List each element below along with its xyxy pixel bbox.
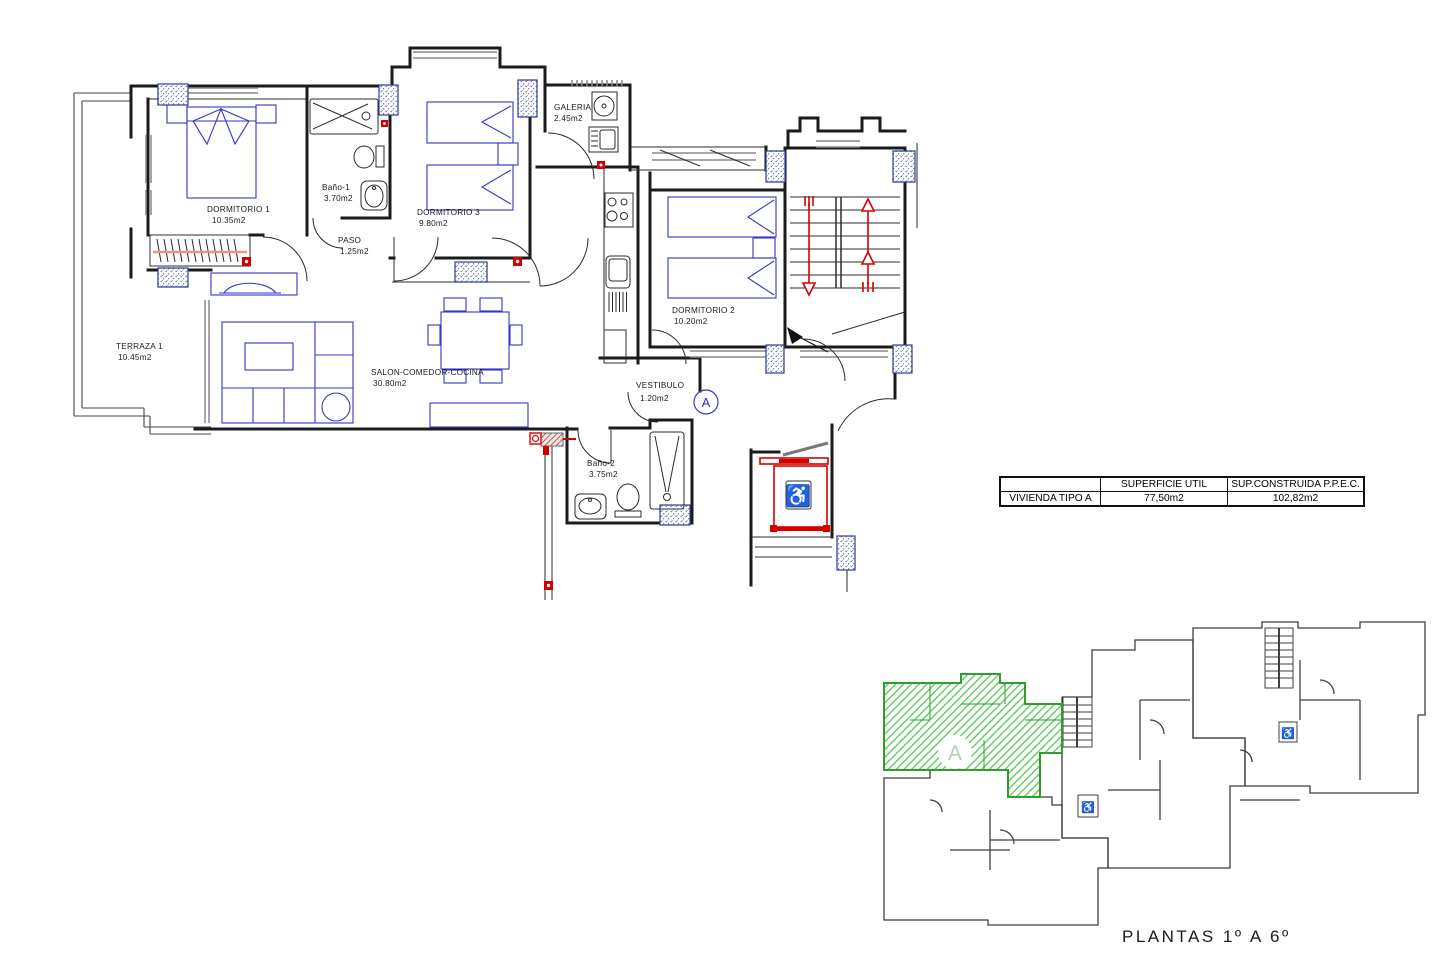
label-paso: PASO xyxy=(338,236,361,245)
area-terraza-1: 10.45m2 xyxy=(118,353,152,362)
duct-assembly xyxy=(530,433,576,455)
area-vestibulo: 1.20m2 xyxy=(640,394,669,403)
area-dormitorio-2: 10.20m2 xyxy=(674,317,708,326)
unit-marker-letter: A xyxy=(702,395,711,410)
label-bano-1: Baño-1 xyxy=(322,183,350,192)
cell-sup-construida: 102,82m2 xyxy=(1228,492,1365,507)
overview-elevators: ♿ ♿ xyxy=(1078,722,1297,817)
label-dormitorio-1: DORMITORIO 1 xyxy=(207,205,270,214)
floor-plan-sheet: ♿ A DORMITORIO 1 10.35m2 Baño-1 3.70m2 xyxy=(0,0,1433,974)
stair-arrows-icon xyxy=(803,196,874,295)
area-salon: 30.80m2 xyxy=(373,379,407,388)
unit-marker: A xyxy=(694,390,718,414)
overview-caption: PLANTAS 1º A 6º xyxy=(1122,927,1291,946)
thin-lines xyxy=(148,99,917,600)
area-bano-1: 3.70m2 xyxy=(324,194,353,203)
header-superficie-util: SUPERFICIE UTIL xyxy=(1101,477,1228,492)
wheelchair-icon: ♿ xyxy=(785,483,811,508)
elevator: ♿ xyxy=(760,443,830,532)
overview-unit-letter: A xyxy=(948,742,962,765)
summary-table-data-row: VIVIENDA TIPO A 77,50m2 102,82m2 xyxy=(1000,492,1364,507)
area-dormitorio-1: 10.35m2 xyxy=(212,216,246,225)
overview-building-outline xyxy=(884,622,1425,925)
cell-vivienda-tipo: VIVIENDA TIPO A xyxy=(1000,492,1101,507)
area-galeria: 2.45m2 xyxy=(554,114,583,123)
summary-table-header-row: SUPERFICIE UTIL SUP.CONSTRUIDA P.P.E.C. xyxy=(1000,477,1364,492)
fixtures xyxy=(150,92,750,519)
cell-superficie-util: 77,50m2 xyxy=(1101,492,1228,507)
area-paso: 1.25m2 xyxy=(340,247,369,256)
red-markers xyxy=(242,120,605,590)
label-salon: SALON-COMEDOR-COCINA xyxy=(371,368,484,377)
header-empty xyxy=(1000,477,1101,492)
label-galeria: GALERIA xyxy=(554,103,592,112)
wheelchair-icon: ♿ xyxy=(1281,727,1295,740)
area-bano-2: 3.75m2 xyxy=(589,470,618,479)
area-dormitorio-3: 9.80m2 xyxy=(419,219,448,228)
header-sup-construida: SUP.CONSTRUIDA P.P.E.C. xyxy=(1228,477,1365,492)
label-dormitorio-2: DORMITORIO 2 xyxy=(672,306,735,315)
label-bano-2: Baño-2 xyxy=(587,459,615,468)
door-arcs xyxy=(263,133,894,463)
summary-table: SUPERFICIE UTIL SUP.CONSTRUIDA P.P.E.C. … xyxy=(999,476,1365,507)
overview-stairs-icon xyxy=(1063,628,1293,747)
label-terraza-1: TERRAZA 1 xyxy=(116,342,163,351)
terraza-parapet xyxy=(74,93,211,434)
wheelchair-icon: ♿ xyxy=(1081,801,1095,814)
label-vestibulo: VESTIBULO xyxy=(636,381,684,390)
label-dormitorio-3: DORMITORIO 3 xyxy=(417,208,480,217)
overview-key-plan: ♿ ♿ A PLANTAS 1º A 6º xyxy=(884,622,1425,946)
